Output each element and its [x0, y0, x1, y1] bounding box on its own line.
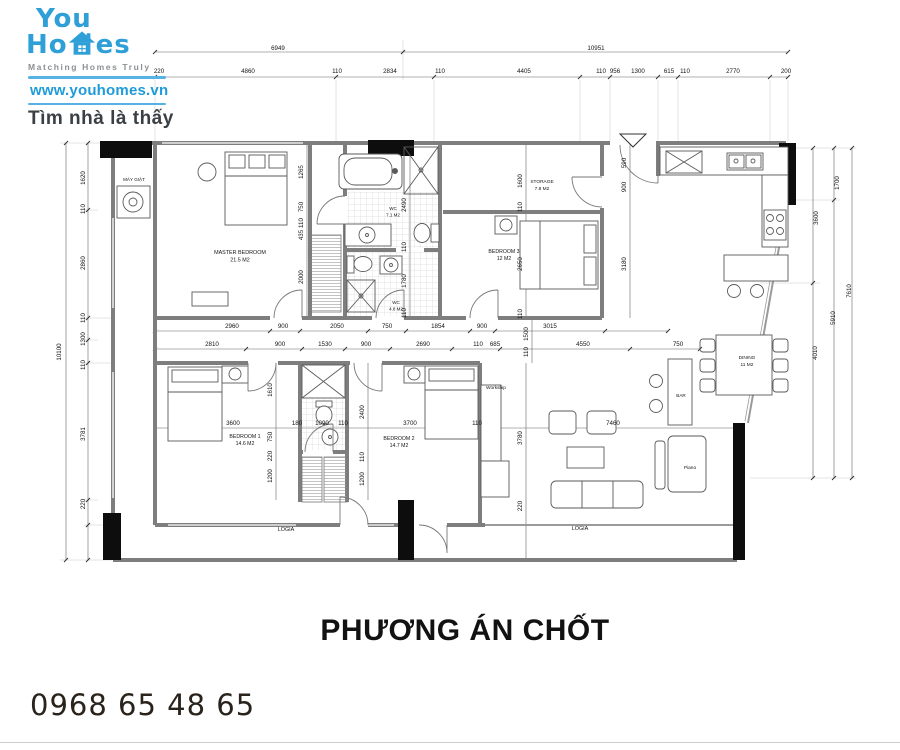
dimension-label: 3600	[813, 211, 820, 225]
dimension-label: 1300	[80, 332, 87, 346]
dimension-label: 1600	[517, 174, 524, 188]
sofa-set	[549, 411, 643, 508]
dimension-label: 750	[267, 431, 274, 442]
master-bed	[225, 152, 287, 225]
dimension-label: 1780	[401, 274, 408, 288]
logo-slogan: Tìm nhà là thấy	[28, 108, 226, 130]
dimension-label: 110	[80, 204, 87, 214]
dimension-label: 1620	[80, 171, 87, 185]
room-label: BAR	[676, 393, 686, 398]
wardrobe	[324, 457, 347, 502]
dimension-label: 110	[332, 68, 342, 75]
logo-word-you: You	[36, 8, 226, 31]
logo-tagline: Matching Homes Truly	[28, 62, 226, 72]
dimension-label: 5910	[830, 311, 837, 325]
dimension-label: 2860	[80, 256, 87, 270]
dimension-label: 900	[621, 181, 628, 192]
dimension-label: 1610	[267, 383, 274, 397]
dimension-label: 956	[610, 68, 621, 75]
room-label: Piano	[684, 465, 697, 471]
dimension-label: 900	[278, 323, 289, 330]
logo-divider-bottom	[28, 103, 166, 106]
room-label: LOGIA	[278, 527, 295, 533]
dimension-label: 3015	[543, 323, 557, 330]
door-logia2	[419, 525, 447, 553]
dimension-label: 750	[382, 323, 393, 330]
sink	[322, 429, 338, 445]
dimension-label: 110	[517, 202, 524, 212]
dimension-label: 2000	[298, 270, 305, 284]
kitchen-counter	[660, 147, 788, 281]
dimension-label: 3781	[80, 427, 87, 441]
room-label: BEDROOM 1	[229, 434, 260, 440]
dimension-label: 900	[275, 341, 286, 348]
room-label: 11 M2	[741, 362, 754, 368]
door-storage	[572, 177, 602, 207]
dimension-label: 4405	[517, 68, 531, 75]
dimension-label: 110	[401, 242, 408, 252]
dimension-label: 4010	[812, 346, 819, 360]
stool	[728, 285, 741, 298]
dimension-label: 200	[781, 68, 792, 75]
room-label: 14.7 M2	[390, 443, 409, 449]
wardrobe	[302, 457, 322, 502]
dimension-label: 435	[298, 229, 305, 240]
bed	[168, 367, 222, 441]
dimension-label: 110	[435, 68, 445, 75]
entrance-arrow-icon	[620, 134, 646, 147]
room-label: Workship	[486, 385, 506, 391]
room-label: LOGIA	[572, 526, 589, 532]
dimension-label: 1200	[267, 469, 274, 483]
dimension-label: 110	[80, 313, 87, 323]
bed	[425, 366, 478, 439]
door-master	[274, 290, 302, 318]
bedside-table	[198, 163, 216, 181]
sink	[345, 224, 391, 246]
room-label: BEDROOM 2	[383, 436, 414, 442]
dimension-label: 3780	[517, 431, 524, 445]
logo-word-ho: Ho	[26, 33, 68, 58]
dimension-label: 900	[361, 341, 372, 348]
logo-divider-top	[28, 76, 166, 79]
room-label: 14.6 M2	[236, 441, 255, 447]
dimension-label: 900	[477, 323, 488, 330]
dimension-label: 2770	[726, 68, 740, 75]
house-icon	[68, 31, 96, 56]
dimension-label: 110	[596, 68, 606, 75]
logo-word-homes: Hoes	[26, 31, 226, 57]
dimension-label: 220	[267, 450, 274, 461]
washing-machine	[117, 186, 150, 218]
dimension-label: 1300	[631, 68, 645, 75]
dimension-label: 110	[680, 68, 690, 75]
door-wc1	[317, 196, 345, 224]
dimension-label: 3180	[621, 257, 628, 271]
room-label: BEDROOM 3	[488, 249, 519, 255]
dimension-label: 1530	[318, 341, 332, 348]
dimension-label: 110	[517, 309, 524, 319]
dimension-label: 110	[473, 341, 483, 348]
dimension-label: 750	[673, 341, 684, 348]
wardrobe	[311, 235, 341, 312]
dimension-label: 110	[80, 360, 87, 370]
stool	[751, 285, 764, 298]
dimension-label: 220	[517, 500, 524, 511]
dimension-label: 2834	[383, 68, 397, 75]
logo-word-es: es	[96, 33, 131, 58]
piano	[655, 436, 706, 492]
dimension-label: 2960	[225, 323, 239, 330]
dimension-label: 110	[523, 347, 530, 357]
dimension-label: 2690	[416, 341, 430, 348]
worship-cabinet	[481, 385, 509, 497]
room-label: 7.8 M2	[535, 186, 550, 192]
bar-counter	[668, 359, 692, 425]
bar-stool	[650, 375, 663, 388]
room-label: WC	[392, 300, 400, 305]
dimension-label: 110	[359, 452, 366, 462]
dimension-label: 220	[80, 498, 87, 509]
dimension-label: 110	[338, 420, 348, 427]
room-label: 4.8 M2	[389, 307, 403, 312]
furniture	[117, 147, 788, 508]
door-bedroom3	[470, 290, 498, 318]
dimension-label: 2810	[205, 341, 219, 348]
bathtub	[339, 154, 402, 189]
room-label: 7.1 M2	[386, 213, 400, 218]
footer-divider	[0, 742, 900, 743]
dimension-label: 110	[472, 420, 482, 427]
toilet	[347, 256, 372, 273]
dimension-label: 110	[298, 218, 305, 228]
dimension-label: 1500	[523, 327, 530, 341]
dimension-label: 4860	[241, 68, 255, 75]
dimension-label: 2400	[359, 405, 366, 419]
dimension-label: 2650	[517, 257, 524, 271]
room-label: 21.5 M2	[230, 257, 249, 263]
dimension-label: 3700	[403, 420, 417, 427]
dimension-label: 615	[664, 68, 675, 75]
bench	[192, 292, 228, 306]
shower	[302, 365, 345, 398]
youhomes-logo: You Hoes Matching Homes Truly www.youhom…	[26, 8, 226, 130]
dimension-label: 1265	[298, 165, 305, 179]
room-label: WC	[389, 206, 397, 211]
room-label: STORAGE	[530, 179, 553, 185]
dimension-label: 7610	[846, 284, 853, 298]
dimension-label: 1090	[315, 420, 329, 427]
logo-website: www.youhomes.vn	[30, 82, 226, 99]
dimension-label: 180	[292, 420, 303, 427]
walls	[113, 143, 786, 560]
room-label: MÁY GIẶT	[123, 176, 145, 182]
shower	[404, 147, 438, 194]
plan-title: PHƯƠNG ÁN CHỐT	[15, 614, 900, 648]
dimension-label: 10951	[587, 45, 605, 52]
dimension-label: 1700	[834, 176, 841, 190]
dimension-label: 750	[298, 201, 305, 212]
room-label: DINING	[739, 355, 756, 361]
room-label: 12 M2	[497, 256, 512, 262]
dimension-label: 590	[621, 157, 628, 168]
dimension-label: 2490	[401, 198, 408, 212]
room-label: MASTER BEDROOM	[214, 250, 266, 256]
phone-number: 0968 65 48 65	[30, 688, 255, 722]
dimension-label: 2050	[330, 323, 344, 330]
dimension-label: 3600	[226, 420, 240, 427]
dimension-label: 1854	[431, 323, 445, 330]
bedside-table	[495, 216, 517, 234]
structural-pillars	[100, 140, 796, 560]
bed	[520, 221, 598, 289]
toilet	[414, 224, 439, 243]
bar-stool	[650, 400, 663, 413]
dimension-label: 685	[490, 341, 501, 348]
dimension-label: 1200	[359, 472, 366, 486]
dimension-label: 6949	[271, 45, 285, 52]
bedside-table	[404, 366, 425, 383]
dimension-label: 10100	[56, 343, 63, 361]
bedside-table	[222, 366, 248, 383]
sink	[380, 256, 402, 274]
dimension-label: 7460	[606, 420, 620, 427]
dimension-label: 4550	[576, 341, 590, 348]
